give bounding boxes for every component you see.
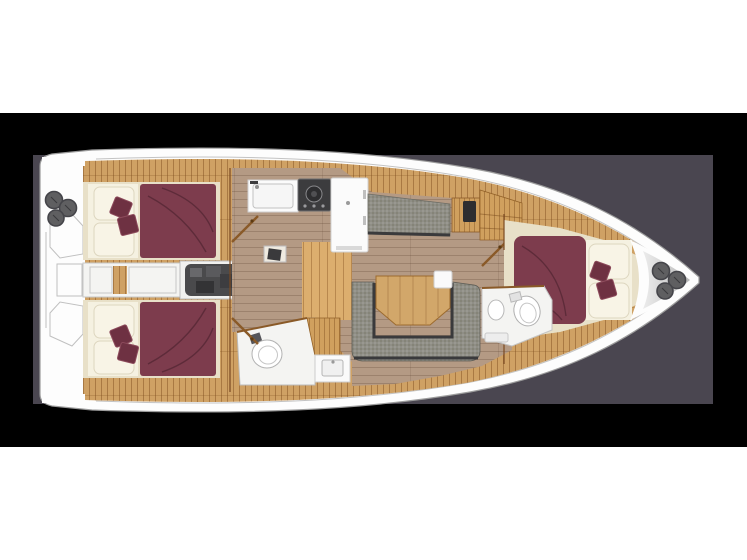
stove-knob xyxy=(303,204,306,207)
aft-cabin-starboard xyxy=(83,300,220,394)
page-canvas xyxy=(0,0,747,560)
dinette-u-sofa xyxy=(352,271,480,361)
door-knob xyxy=(250,337,253,340)
companionway-landing xyxy=(302,242,352,320)
counter-fitting xyxy=(346,201,350,205)
stove-knob xyxy=(312,204,315,207)
faucet-icon xyxy=(255,185,259,189)
stove-knob xyxy=(321,204,324,207)
corridor-sole xyxy=(83,263,180,297)
aft-corridor xyxy=(83,263,180,297)
engine-part xyxy=(196,281,214,293)
nav-module xyxy=(452,198,480,232)
accent-cushion xyxy=(117,214,139,236)
corridor-wood-block xyxy=(113,266,127,294)
fridge-counter xyxy=(331,178,368,252)
shower-grate xyxy=(485,333,508,342)
aft-head xyxy=(237,318,350,385)
faucet-icon xyxy=(331,360,334,363)
wash-basin xyxy=(488,300,504,320)
accent-cushion xyxy=(117,342,139,364)
handle xyxy=(363,190,366,199)
locker-vent xyxy=(463,201,476,222)
floor-plan-drawing xyxy=(0,0,747,560)
door-knob xyxy=(498,245,501,248)
headboard-shelf xyxy=(83,378,220,394)
headboard-shelf xyxy=(83,166,220,182)
engine-part xyxy=(190,268,202,277)
aft-cabin-port xyxy=(83,166,220,260)
table-pad xyxy=(434,271,452,288)
door-knob xyxy=(250,219,253,222)
stern-platform xyxy=(42,157,85,403)
sink-basin xyxy=(253,184,293,208)
counter-detail xyxy=(250,181,258,184)
settee-trim xyxy=(368,233,450,235)
engine-part xyxy=(206,266,221,277)
mast-step xyxy=(264,246,286,262)
burner-icon xyxy=(311,191,317,197)
handle xyxy=(363,216,366,225)
kick-plate xyxy=(336,246,362,250)
